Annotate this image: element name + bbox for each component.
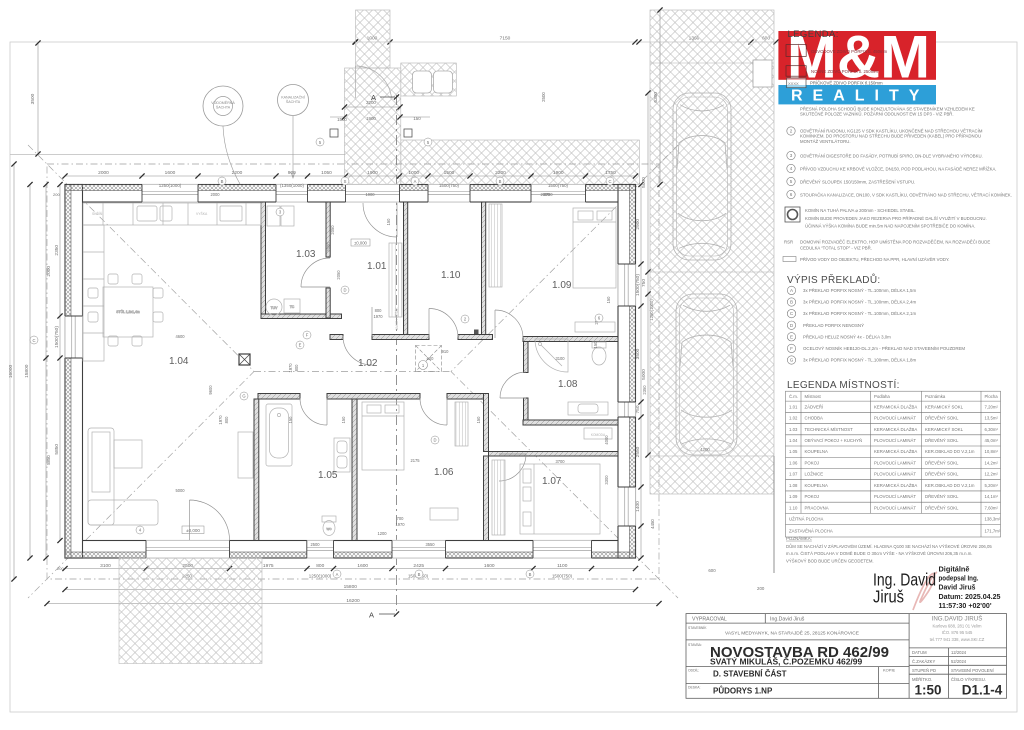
svg-text:200: 200 xyxy=(53,192,60,197)
svg-text:2175: 2175 xyxy=(410,458,420,463)
svg-text:1.02: 1.02 xyxy=(358,358,378,369)
svg-text:4: 4 xyxy=(790,166,793,171)
svg-text:KERAMICKÁ DLAŽBA: KERAMICKÁ DLAŽBA xyxy=(874,427,917,432)
svg-text:STAVEBNÍ POVOLENÍ: STAVEBNÍ POVOLENÍ xyxy=(951,668,994,673)
svg-text:2000: 2000 xyxy=(98,170,109,176)
svg-text:POKOJ: POKOJ xyxy=(805,494,820,499)
svg-text:171,7m²: 171,7m² xyxy=(985,528,1001,533)
svg-text:5000: 5000 xyxy=(175,488,185,493)
svg-text:2350: 2350 xyxy=(54,245,60,256)
svg-text:1250(1000): 1250(1000) xyxy=(309,574,332,579)
svg-text:KERAMICKÁ DLAŽBA: KERAMICKÁ DLAŽBA xyxy=(874,483,917,488)
svg-text:14,2m²: 14,2m² xyxy=(985,460,999,465)
svg-text:7,60m²: 7,60m² xyxy=(985,505,999,510)
svg-text:KER.OBKLAD DO V.2,1m: KER.OBKLAD DO V.2,1m xyxy=(925,483,975,488)
svg-text:PŮDORYS 1.NP: PŮDORYS 1.NP xyxy=(713,686,773,696)
svg-text:CEDULKA “TOTAL STOP” - VIZ PBŘ: CEDULKA “TOTAL STOP” - VIZ PBŘ. xyxy=(800,246,872,251)
svg-text:1250(1000): 1250(1000) xyxy=(649,299,654,321)
svg-text:DŘEVĚNÝ SLOUPEK 150/150mm, ZAS: DŘEVĚNÝ SLOUPEK 150/150mm, ZASTŘEŠENÍ VS… xyxy=(800,179,915,184)
svg-text:5850: 5850 xyxy=(46,455,51,465)
svg-text:±0,000: ±0,000 xyxy=(186,528,200,533)
svg-text:1000: 1000 xyxy=(408,170,419,176)
svg-text:3100: 3100 xyxy=(100,563,111,569)
svg-text:PRÍČKOVÉ ZDIVO PORFIX tl.150m: PRÍČKOVÉ ZDIVO PORFIX tl.150mm xyxy=(810,81,883,86)
svg-text:DATUM: DATUM xyxy=(912,650,927,655)
svg-text:3700: 3700 xyxy=(555,459,565,464)
svg-text:SKUTEČNÉ POLOZE VAZNÍKŮ. POŽÁR: SKUTEČNÉ POLOZE VAZNÍKŮ. POŽÁRNÍ ODOLNOS… xyxy=(800,112,954,117)
svg-text:1.02: 1.02 xyxy=(789,416,798,421)
svg-text:16000: 16000 xyxy=(8,365,14,379)
svg-text:podepsal Ing.: podepsal Ing. xyxy=(939,574,979,583)
svg-text:200: 200 xyxy=(757,586,765,591)
svg-text:OBÝVACÍ POKOJ + KUCHYŇ: OBÝVACÍ POKOJ + KUCHYŇ xyxy=(805,438,863,443)
svg-text:3500: 3500 xyxy=(30,93,36,104)
svg-text:1.09: 1.09 xyxy=(552,280,572,291)
svg-text:1.08: 1.08 xyxy=(558,379,578,390)
svg-text:B: B xyxy=(529,572,532,577)
svg-text:Poznámka: Poznámka xyxy=(925,394,946,399)
svg-text:2550: 2550 xyxy=(635,446,641,457)
svg-text:5850: 5850 xyxy=(54,444,60,455)
svg-text:700: 700 xyxy=(397,516,405,521)
svg-text:KOUPELNA: KOUPELNA xyxy=(805,449,829,454)
svg-text:Datum: 2025.04.25: Datum: 2025.04.25 xyxy=(939,592,1002,601)
svg-text:SVATÝ MIKULÁŠ, Č.POZEMKU 462/9: SVATÝ MIKULÁŠ, Č.POZEMKU 462/99 xyxy=(710,656,863,667)
svg-text:MONTÁŽ VENTILÁTORU.: MONTÁŽ VENTILÁTORU. xyxy=(800,139,851,144)
svg-text:Č.ZAKÁZKY: Č.ZAKÁZKY xyxy=(912,659,935,664)
svg-text:VYPRACOVAL: VYPRACOVAL xyxy=(692,617,727,623)
svg-text:2500: 2500 xyxy=(310,542,320,547)
svg-text:Místnost: Místnost xyxy=(805,394,822,399)
svg-text:3x PŘEKLAD PORFIX NOSNÝ - TL.1: 3x PŘEKLAD PORFIX NOSNÝ - TL.100mm, DÉLK… xyxy=(803,358,916,363)
svg-text:DŮM SE NACHÁZÍ V ZÁPLAVOVÉM ÚZ: DŮM SE NACHÁZÍ V ZÁPLAVOVÉM ÚZEMÍ. HLADI… xyxy=(786,544,992,549)
svg-text:ZASTAVĚNÁ PLOCHA: ZASTAVĚNÁ PLOCHA xyxy=(789,528,833,533)
svg-text:45,0m²: 45,0m² xyxy=(985,438,999,443)
svg-text:F: F xyxy=(790,346,793,351)
svg-text:VÝPIS PŘEKLADŮ:: VÝPIS PŘEKLADŮ: xyxy=(787,273,880,286)
svg-text:DŘEVĚNÝ SOKL: DŘEVĚNÝ SOKL xyxy=(925,438,959,443)
svg-text:STŮL 1,8x1,4m: STŮL 1,8x1,4m xyxy=(116,309,140,314)
svg-text:5000: 5000 xyxy=(641,177,647,188)
svg-text:tel.777 941 338, www.SKI.CZ: tel.777 941 338, www.SKI.CZ xyxy=(930,637,985,642)
svg-text:3700: 3700 xyxy=(543,192,553,197)
svg-text:POKOJ: POKOJ xyxy=(805,460,820,465)
svg-text:150: 150 xyxy=(386,218,391,226)
svg-text:VÝŠKOVÝ BOD BUDE URČEN GEODETE: VÝŠKOVÝ BOD BUDE URČEN GEODETEM. xyxy=(786,558,874,563)
svg-text:ZÁDVEŘÍ: ZÁDVEŘÍ xyxy=(805,404,824,409)
svg-text:1.08: 1.08 xyxy=(789,483,798,488)
svg-text:UMKE / VĚŠÁK: UMKE / VĚŠÁK xyxy=(394,307,399,330)
svg-text:VYŠKA: VYŠKA xyxy=(196,211,208,216)
svg-text:750: 750 xyxy=(641,279,647,287)
svg-text:900: 900 xyxy=(288,170,296,176)
svg-text:D: D xyxy=(343,288,346,293)
svg-text:1500(750): 1500(750) xyxy=(439,183,460,188)
svg-text:1500(750): 1500(750) xyxy=(552,574,573,579)
svg-text:KANALIZAČNÍ: KANALIZAČNÍ xyxy=(281,95,305,100)
svg-text:1.06: 1.06 xyxy=(434,467,454,478)
svg-text:1.05: 1.05 xyxy=(789,449,798,454)
svg-text:ŠACHTA: ŠACHTA xyxy=(286,99,301,104)
svg-text:150: 150 xyxy=(341,416,346,424)
svg-text:REALITY: REALITY xyxy=(791,88,929,105)
svg-text:PLOVOUCÍ LAMINÁT: PLOVOUCÍ LAMINÁT xyxy=(874,460,916,465)
svg-text:PŘÍVOD VZDUCHU KE KRBOVÉ VLOŽC: PŘÍVOD VZDUCHU KE KRBOVÉ VLOŽCE, DN150, … xyxy=(800,166,997,171)
svg-text:PŘEKLAD HELUZ NOSNÝ 4x - DÉLKA: PŘEKLAD HELUZ NOSNÝ 4x - DÉLKA 3,0m xyxy=(803,334,891,339)
svg-text:1970: 1970 xyxy=(373,314,383,319)
svg-text:Digitálně: Digitálně xyxy=(939,565,970,574)
svg-text:B: B xyxy=(221,179,224,184)
svg-text:2350: 2350 xyxy=(642,385,647,395)
svg-text:STOUPAČKA KANALIZACE, DN100, V: STOUPAČKA KANALIZACE, DN100, V SDK KASTL… xyxy=(800,192,1012,197)
svg-text:G: G xyxy=(790,358,794,363)
svg-text:KOPIE: KOPIE xyxy=(883,668,896,673)
svg-text:1500(750): 1500(750) xyxy=(54,326,60,348)
svg-text:C: C xyxy=(608,179,611,184)
svg-text:9600: 9600 xyxy=(208,385,213,395)
svg-text:1900: 1900 xyxy=(553,170,564,176)
svg-text:KOMÍN BUDE PROVEDEN JAKO REZER: KOMÍN BUDE PROVEDEN JAKO REZERVA PRO PŘÍ… xyxy=(805,216,987,221)
svg-text:2200: 2200 xyxy=(495,170,506,176)
svg-text:PŘÍVOD VODY DO OBJEKTU, PŘECHO: PŘÍVOD VODY DO OBJEKTU, PŘECHOD NA PPR, … xyxy=(800,257,949,262)
svg-text:D: D xyxy=(433,438,436,443)
svg-text:PLOVOUCÍ LAMINÁT: PLOVOUCÍ LAMINÁT xyxy=(874,494,916,499)
svg-text:PLOVOUCÍ LAMINÁT: PLOVOUCÍ LAMINÁT xyxy=(874,416,916,421)
svg-text:1.06: 1.06 xyxy=(789,460,798,465)
svg-text:1.03: 1.03 xyxy=(789,427,798,432)
svg-text:ODVĚTRÁNÍ DIGESTOŘE DO FASÁDY,: ODVĚTRÁNÍ DIGESTOŘE DO FASÁDY, POTRUBÍ S… xyxy=(800,153,983,158)
svg-text:RSR: RSR xyxy=(784,240,793,245)
svg-text:1.07: 1.07 xyxy=(542,476,562,487)
svg-text:ÚČINNÁ VÝŠKA KOMÍNA BUDE min.5: ÚČINNÁ VÝŠKA KOMÍNA BUDE min.5m NAD NAPO… xyxy=(805,224,975,229)
svg-text:E: E xyxy=(790,334,793,339)
svg-text:1.03: 1.03 xyxy=(296,249,316,260)
svg-text:150: 150 xyxy=(288,416,293,424)
svg-text:7150: 7150 xyxy=(500,36,511,42)
svg-text:DOMOVNÍ ROZVADĚČ ELEKTRO, HOP: DOMOVNÍ ROZVADĚČ ELEKTRO, HOP UMÍSTĚNA P… xyxy=(800,240,990,245)
svg-text:KERAMICKÁ DLAŽBA: KERAMICKÁ DLAŽBA xyxy=(874,449,917,454)
svg-text:1970: 1970 xyxy=(218,415,223,425)
svg-text:13,5m²: 13,5m² xyxy=(985,416,999,421)
svg-text:800: 800 xyxy=(294,364,299,372)
svg-text:KERAMICKÁ DLAŽBA: KERAMICKÁ DLAŽBA xyxy=(874,404,917,409)
svg-text:(1350(1000): (1350(1000) xyxy=(280,183,304,188)
svg-text:3x PŘEKLAD PORFIX NOSNÝ - TL.1: 3x PŘEKLAD PORFIX NOSNÝ - TL.100mm, DÉLK… xyxy=(803,288,916,293)
svg-text:1600: 1600 xyxy=(357,563,368,569)
svg-text:m.n.m. ČISTÁ PODLAHA V DOMĚ BU: m.n.m. ČISTÁ PODLAHA V DOMĚ BUDE O 30cm … xyxy=(786,551,973,556)
svg-text:2050: 2050 xyxy=(330,225,335,235)
svg-text:Jiruš: Jiruš xyxy=(873,587,904,607)
svg-text:800: 800 xyxy=(224,416,229,424)
svg-text:200: 200 xyxy=(57,566,64,571)
svg-text:3500: 3500 xyxy=(635,348,641,359)
svg-text:1500(750): 1500(750) xyxy=(548,183,569,188)
svg-text:1975: 1975 xyxy=(263,563,274,569)
svg-text:4450: 4450 xyxy=(650,519,655,529)
svg-text:±0,000: ±0,000 xyxy=(354,240,367,245)
svg-text:800: 800 xyxy=(316,563,324,569)
svg-text:DŘEVĚNÝ SOKL: DŘEVĚNÝ SOKL xyxy=(925,472,959,477)
svg-text:DŘEVĚNÝ SOKL: DŘEVĚNÝ SOKL xyxy=(925,505,959,510)
svg-text:1900: 1900 xyxy=(365,192,375,197)
svg-text:ŠACHTA: ŠACHTA xyxy=(216,105,231,110)
svg-text:PLOVOUCÍ LAMINÁT: PLOVOUCÍ LAMINÁT xyxy=(874,505,916,510)
svg-text:KERAMICKÝ SOKL: KERAMICKÝ SOKL xyxy=(925,404,964,409)
svg-text:A: A xyxy=(336,572,339,577)
svg-text:12/2024: 12/2024 xyxy=(951,650,967,655)
svg-text:2000: 2000 xyxy=(326,242,331,252)
svg-text:10,8m²: 10,8m² xyxy=(985,449,999,454)
svg-text:STAVBA:: STAVBA: xyxy=(688,643,702,647)
svg-text:Plocha: Plocha xyxy=(985,394,999,399)
svg-text:B: B xyxy=(790,300,793,305)
svg-text:16200: 16200 xyxy=(346,598,360,604)
svg-text:1250(1000): 1250(1000) xyxy=(159,183,182,188)
svg-text:STAVEBNÍK: STAVEBNÍK xyxy=(688,626,707,630)
svg-text:2050: 2050 xyxy=(336,270,341,280)
svg-text:A: A xyxy=(414,179,417,184)
svg-text:1200: 1200 xyxy=(377,531,387,536)
svg-text:11:57:30 +02'00': 11:57:30 +02'00' xyxy=(939,601,992,610)
svg-text:PŘEKLAD PORFIX NENOSNÝ: PŘEKLAD PORFIX NENOSNÝ xyxy=(803,323,864,328)
svg-text:B: B xyxy=(499,179,502,184)
svg-text:1:50: 1:50 xyxy=(914,683,941,698)
svg-text:150: 150 xyxy=(593,341,598,349)
svg-text:14,1m²: 14,1m² xyxy=(985,494,999,499)
svg-text:DŘEVĚNÝ SOKL: DŘEVĚNÝ SOKL xyxy=(925,494,959,499)
svg-text:750: 750 xyxy=(635,405,641,413)
svg-text:LEGENDA MÍSTNOSTÍ:: LEGENDA MÍSTNOSTÍ: xyxy=(787,378,900,391)
svg-text:D1.1-4: D1.1-4 xyxy=(962,683,1003,698)
svg-text:3550: 3550 xyxy=(425,542,435,547)
svg-text:VODOMĚRNÁ: VODOMĚRNÁ xyxy=(211,100,235,105)
svg-text:1400: 1400 xyxy=(635,501,641,512)
svg-text:PLOVOUCÍ LAMINÁT: PLOVOUCÍ LAMINÁT xyxy=(874,438,916,443)
svg-text:1.09: 1.09 xyxy=(789,494,798,499)
svg-text:5,20m²: 5,20m² xyxy=(985,483,999,488)
svg-text:POZNÁMKA:: POZNÁMKA: xyxy=(786,536,812,541)
svg-text:2000: 2000 xyxy=(46,266,52,277)
svg-text:KOMÍN NA TUHÁ PALIVA ⌀ 200mm -: KOMÍN NA TUHÁ PALIVA ⌀ 200mm - SCHIEDEL … xyxy=(805,208,916,213)
svg-text:Ing.David Jiruš: Ing.David Jiruš xyxy=(770,617,805,623)
svg-text:LEGENDA:: LEGENDA: xyxy=(788,29,839,40)
svg-text:52/2024: 52/2024 xyxy=(951,659,967,664)
svg-text:6,30m²: 6,30m² xyxy=(985,427,999,432)
svg-text:TECHNICKÁ MÍSTNOST: TECHNICKÁ MÍSTNOST xyxy=(805,427,854,432)
svg-text:3: 3 xyxy=(790,153,793,158)
svg-text:600: 600 xyxy=(427,356,435,361)
svg-text:150: 150 xyxy=(606,296,611,304)
svg-text:1.07: 1.07 xyxy=(789,472,798,477)
svg-text:PRACOVNA: PRACOVNA xyxy=(805,505,829,510)
svg-text:2900: 2900 xyxy=(635,219,641,230)
svg-text:LOŽNICE: LOŽNICE xyxy=(805,472,824,477)
svg-text:138,3m²: 138,3m² xyxy=(985,517,1001,522)
svg-text:2200: 2200 xyxy=(366,100,376,105)
svg-text:Karlova 688, 281 01 Velim: Karlova 688, 281 01 Velim xyxy=(933,624,982,629)
svg-text:1970: 1970 xyxy=(395,522,405,527)
svg-text:XXXX: XXXX xyxy=(788,81,799,86)
svg-text:12,2m²: 12,2m² xyxy=(985,472,999,477)
svg-text:4000: 4000 xyxy=(604,435,609,445)
svg-text:B: B xyxy=(418,572,421,577)
svg-text:KER.OBKLAD DO V.2,1m: KER.OBKLAD DO V.2,1m xyxy=(925,449,975,454)
svg-text:600: 600 xyxy=(708,568,716,573)
svg-text:DŘEVĚNÝ SOKL: DŘEVĚNÝ SOKL xyxy=(925,460,959,465)
svg-text:5: 5 xyxy=(790,179,793,184)
svg-text:1900: 1900 xyxy=(367,170,378,176)
svg-text:DESKA:: DESKA: xyxy=(688,686,700,690)
svg-text:OBVODOVE ZDIVO PORFIX tl. 450: OBVODOVE ZDIVO PORFIX tl. 450mm xyxy=(811,49,888,54)
svg-text:2500: 2500 xyxy=(541,92,546,102)
svg-text:KOUPELNA: KOUPELNA xyxy=(805,483,829,488)
svg-text:1900: 1900 xyxy=(366,116,376,121)
svg-text:UŽITNÁ PLOCHA: UŽITNÁ PLOCHA xyxy=(789,517,824,522)
svg-text:D. STAVEBNÍ ČÁST: D. STAVEBNÍ ČÁST xyxy=(713,670,787,679)
svg-text:15800: 15800 xyxy=(24,364,30,378)
svg-text:15800: 15800 xyxy=(344,584,358,590)
svg-text:800: 800 xyxy=(375,308,383,313)
svg-text:OCELOVÝ NOSNÍK HEB120-DL.2,2m: OCELOVÝ NOSNÍK HEB120-DL.2,2m - PŘEKLAD … xyxy=(803,346,965,351)
svg-text:5000: 5000 xyxy=(641,369,647,380)
svg-text:2200: 2200 xyxy=(232,170,243,176)
svg-text:910: 910 xyxy=(442,349,450,354)
svg-text:ČÍSLO VÝKRESU.: ČÍSLO VÝKRESU. xyxy=(951,677,986,682)
svg-text:F: F xyxy=(306,333,309,338)
svg-text:WC: WC xyxy=(327,527,333,531)
svg-text:IČO. 876 95 545: IČO. 876 95 545 xyxy=(942,630,973,635)
svg-text:3x PŘEKLAD PORFIX NOSNÝ - TL.1: 3x PŘEKLAD PORFIX NOSNÝ - TL.100mm, DÉLK… xyxy=(803,311,916,316)
svg-text:CHODBA: CHODBA xyxy=(805,416,824,421)
svg-text:1050: 1050 xyxy=(321,170,332,176)
svg-text:G: G xyxy=(242,394,245,399)
svg-text:1.04: 1.04 xyxy=(169,356,189,367)
svg-text:David Jiruš: David Jiruš xyxy=(939,583,976,592)
svg-text:A: A xyxy=(369,611,374,620)
svg-text:6: 6 xyxy=(790,192,793,197)
svg-text:STUPEŇ PD: STUPEŇ PD xyxy=(912,668,936,673)
svg-text:3100: 3100 xyxy=(555,356,565,361)
svg-text:1100: 1100 xyxy=(557,563,568,569)
svg-text:Č.m.: Č.m. xyxy=(789,394,798,399)
svg-text:ODDÍL:: ODDÍL: xyxy=(688,669,699,673)
svg-text:1750: 1750 xyxy=(605,170,616,176)
svg-text:C: C xyxy=(32,338,35,343)
svg-text:1.10: 1.10 xyxy=(441,270,461,281)
svg-text:E: E xyxy=(299,343,302,348)
svg-text:4600: 4600 xyxy=(175,334,185,339)
svg-text:1.01: 1.01 xyxy=(367,261,387,272)
svg-text:1600: 1600 xyxy=(484,563,495,569)
svg-text:1.10: 1.10 xyxy=(789,505,798,510)
svg-text:NOSNE ZDIVO PORFIX tl. 250mm: NOSNE ZDIVO PORFIX tl. 250mm xyxy=(811,69,878,74)
svg-text:SKŘÍŇ: SKŘÍŇ xyxy=(92,211,103,216)
svg-text:2000: 2000 xyxy=(210,192,220,197)
svg-text:ING.DAVID JIRUŠ: ING.DAVID JIRUŠ xyxy=(932,616,983,623)
svg-text:3x PŘEKLAD PORFIX NOSNÝ - TL.1: 3x PŘEKLAD PORFIX NOSNÝ - TL.100mm, DÉLK… xyxy=(803,300,916,305)
svg-text:Podlaha: Podlaha xyxy=(874,394,890,399)
svg-text:3300: 3300 xyxy=(604,475,609,485)
svg-text:TUV: TUV xyxy=(271,306,279,310)
svg-text:1500(750): 1500(750) xyxy=(635,274,641,296)
svg-text:PLOVOUCÍ LAMINÁT: PLOVOUCÍ LAMINÁT xyxy=(874,472,916,477)
svg-text:1500: 1500 xyxy=(444,170,455,176)
svg-text:2425: 2425 xyxy=(413,563,424,569)
svg-text:KERAMICKÝ SOKL: KERAMICKÝ SOKL xyxy=(925,427,964,432)
svg-text:TC: TC xyxy=(290,305,295,309)
svg-text:7,20m²: 7,20m² xyxy=(985,404,999,409)
svg-text:1.04: 1.04 xyxy=(789,438,798,443)
svg-text:DŘEVĚNÝ SOKL: DŘEVĚNÝ SOKL xyxy=(925,416,959,421)
svg-text:1970: 1970 xyxy=(288,363,293,373)
svg-text:2: 2 xyxy=(790,129,793,134)
svg-text:150: 150 xyxy=(476,416,481,424)
svg-text:S: S xyxy=(344,179,347,184)
svg-text:1.05: 1.05 xyxy=(318,470,338,481)
svg-text:1.01: 1.01 xyxy=(789,404,798,409)
svg-text:1600: 1600 xyxy=(165,170,176,176)
svg-text:6300: 6300 xyxy=(653,92,659,103)
svg-text:MĚŘÍTKO.: MĚŘÍTKO. xyxy=(912,677,932,682)
